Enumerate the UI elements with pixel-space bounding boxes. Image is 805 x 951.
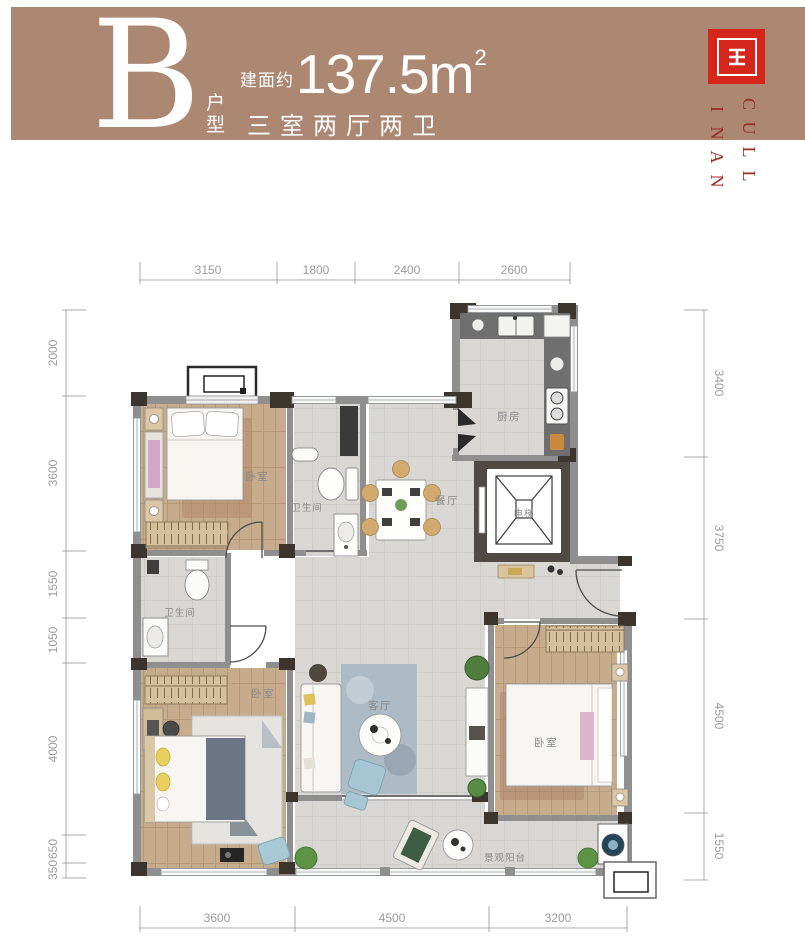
room-label-living: 客厅	[368, 699, 392, 712]
dim-left-2: 1550	[46, 570, 60, 597]
wardrobe	[546, 626, 624, 652]
dim-bottom-2: 3200	[545, 911, 572, 925]
dim-bottom-1: 4500	[379, 911, 406, 925]
dim-left-4: 4000	[46, 735, 60, 762]
dim-top-2: 2400	[394, 263, 421, 277]
dim-right-2: 4500	[712, 703, 726, 730]
dim-right-0: 3400	[712, 370, 726, 397]
room-label-bath2: 卫生间	[164, 607, 196, 619]
room-label-bedroom2: 卧室	[251, 687, 275, 700]
room-label-bath1: 卫生间	[291, 502, 323, 514]
dim-left-5: 650	[46, 839, 60, 859]
room-label-master: 卧室	[534, 736, 558, 749]
dim-right-1: 3750	[712, 525, 726, 552]
wardrobe	[145, 676, 227, 704]
dim-left-3: 1050	[46, 626, 60, 653]
wardrobe	[146, 522, 228, 548]
room-label-bedroom1: 卧室	[245, 470, 269, 483]
dim-left-0: 2000	[46, 339, 60, 366]
bay-window	[186, 367, 258, 404]
room-label-dining: 餐厅	[435, 494, 459, 507]
floorplan-page: B 户型 建面约 137.5m 2 三室两厅两卫 C U L L I N A N	[0, 0, 805, 951]
dim-bottom-0: 3600	[204, 911, 231, 925]
dim-top-3: 2600	[501, 263, 528, 277]
dim-right-3: 1550	[712, 833, 726, 860]
room-label-kitchen: 厨房	[497, 410, 521, 423]
room-label-elevator: 电梯	[513, 508, 534, 520]
room-label-balcony: 景观阳台	[484, 852, 526, 864]
floorplan-canvas: 卧室 卫生间 厨房	[0, 0, 805, 951]
dim-left-6: 350	[46, 860, 60, 880]
dim-top-0: 3150	[195, 263, 222, 277]
dim-left-1: 3600	[46, 459, 60, 486]
dim-top-1: 1800	[303, 263, 330, 277]
